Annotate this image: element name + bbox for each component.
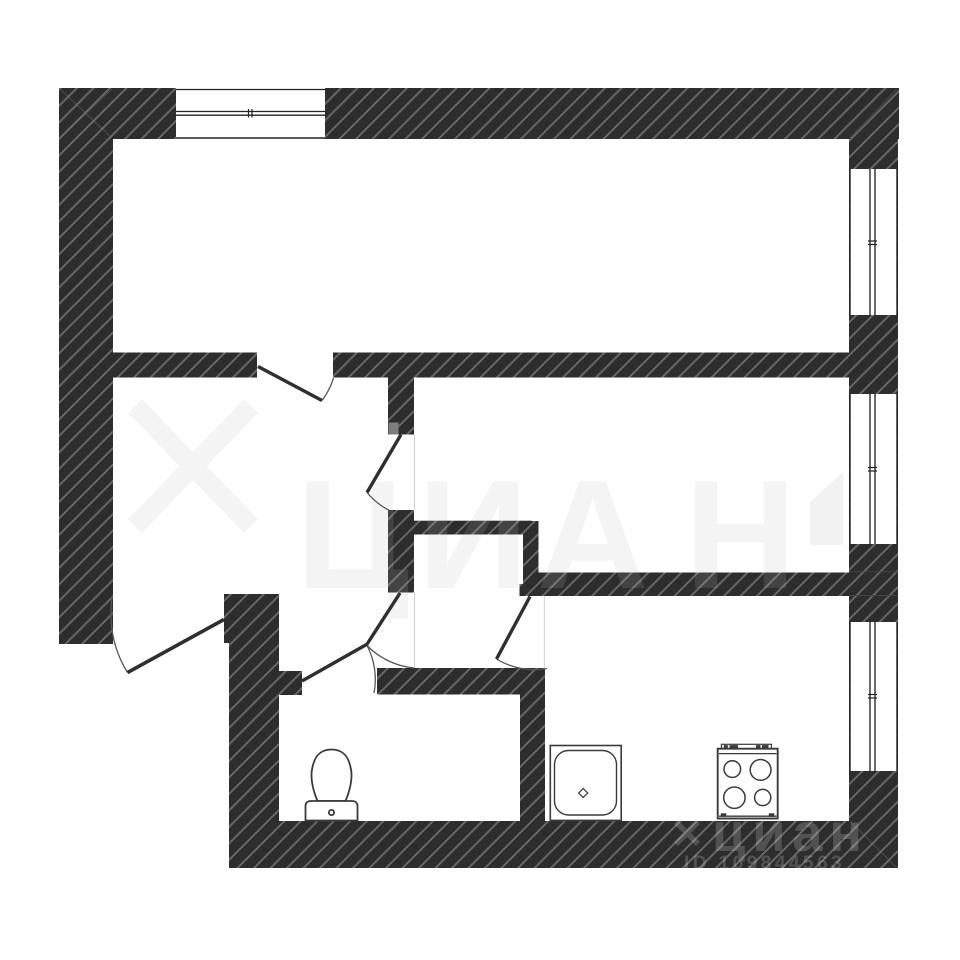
svg-text:ID 109844563: ID 109844563 — [684, 852, 845, 874]
